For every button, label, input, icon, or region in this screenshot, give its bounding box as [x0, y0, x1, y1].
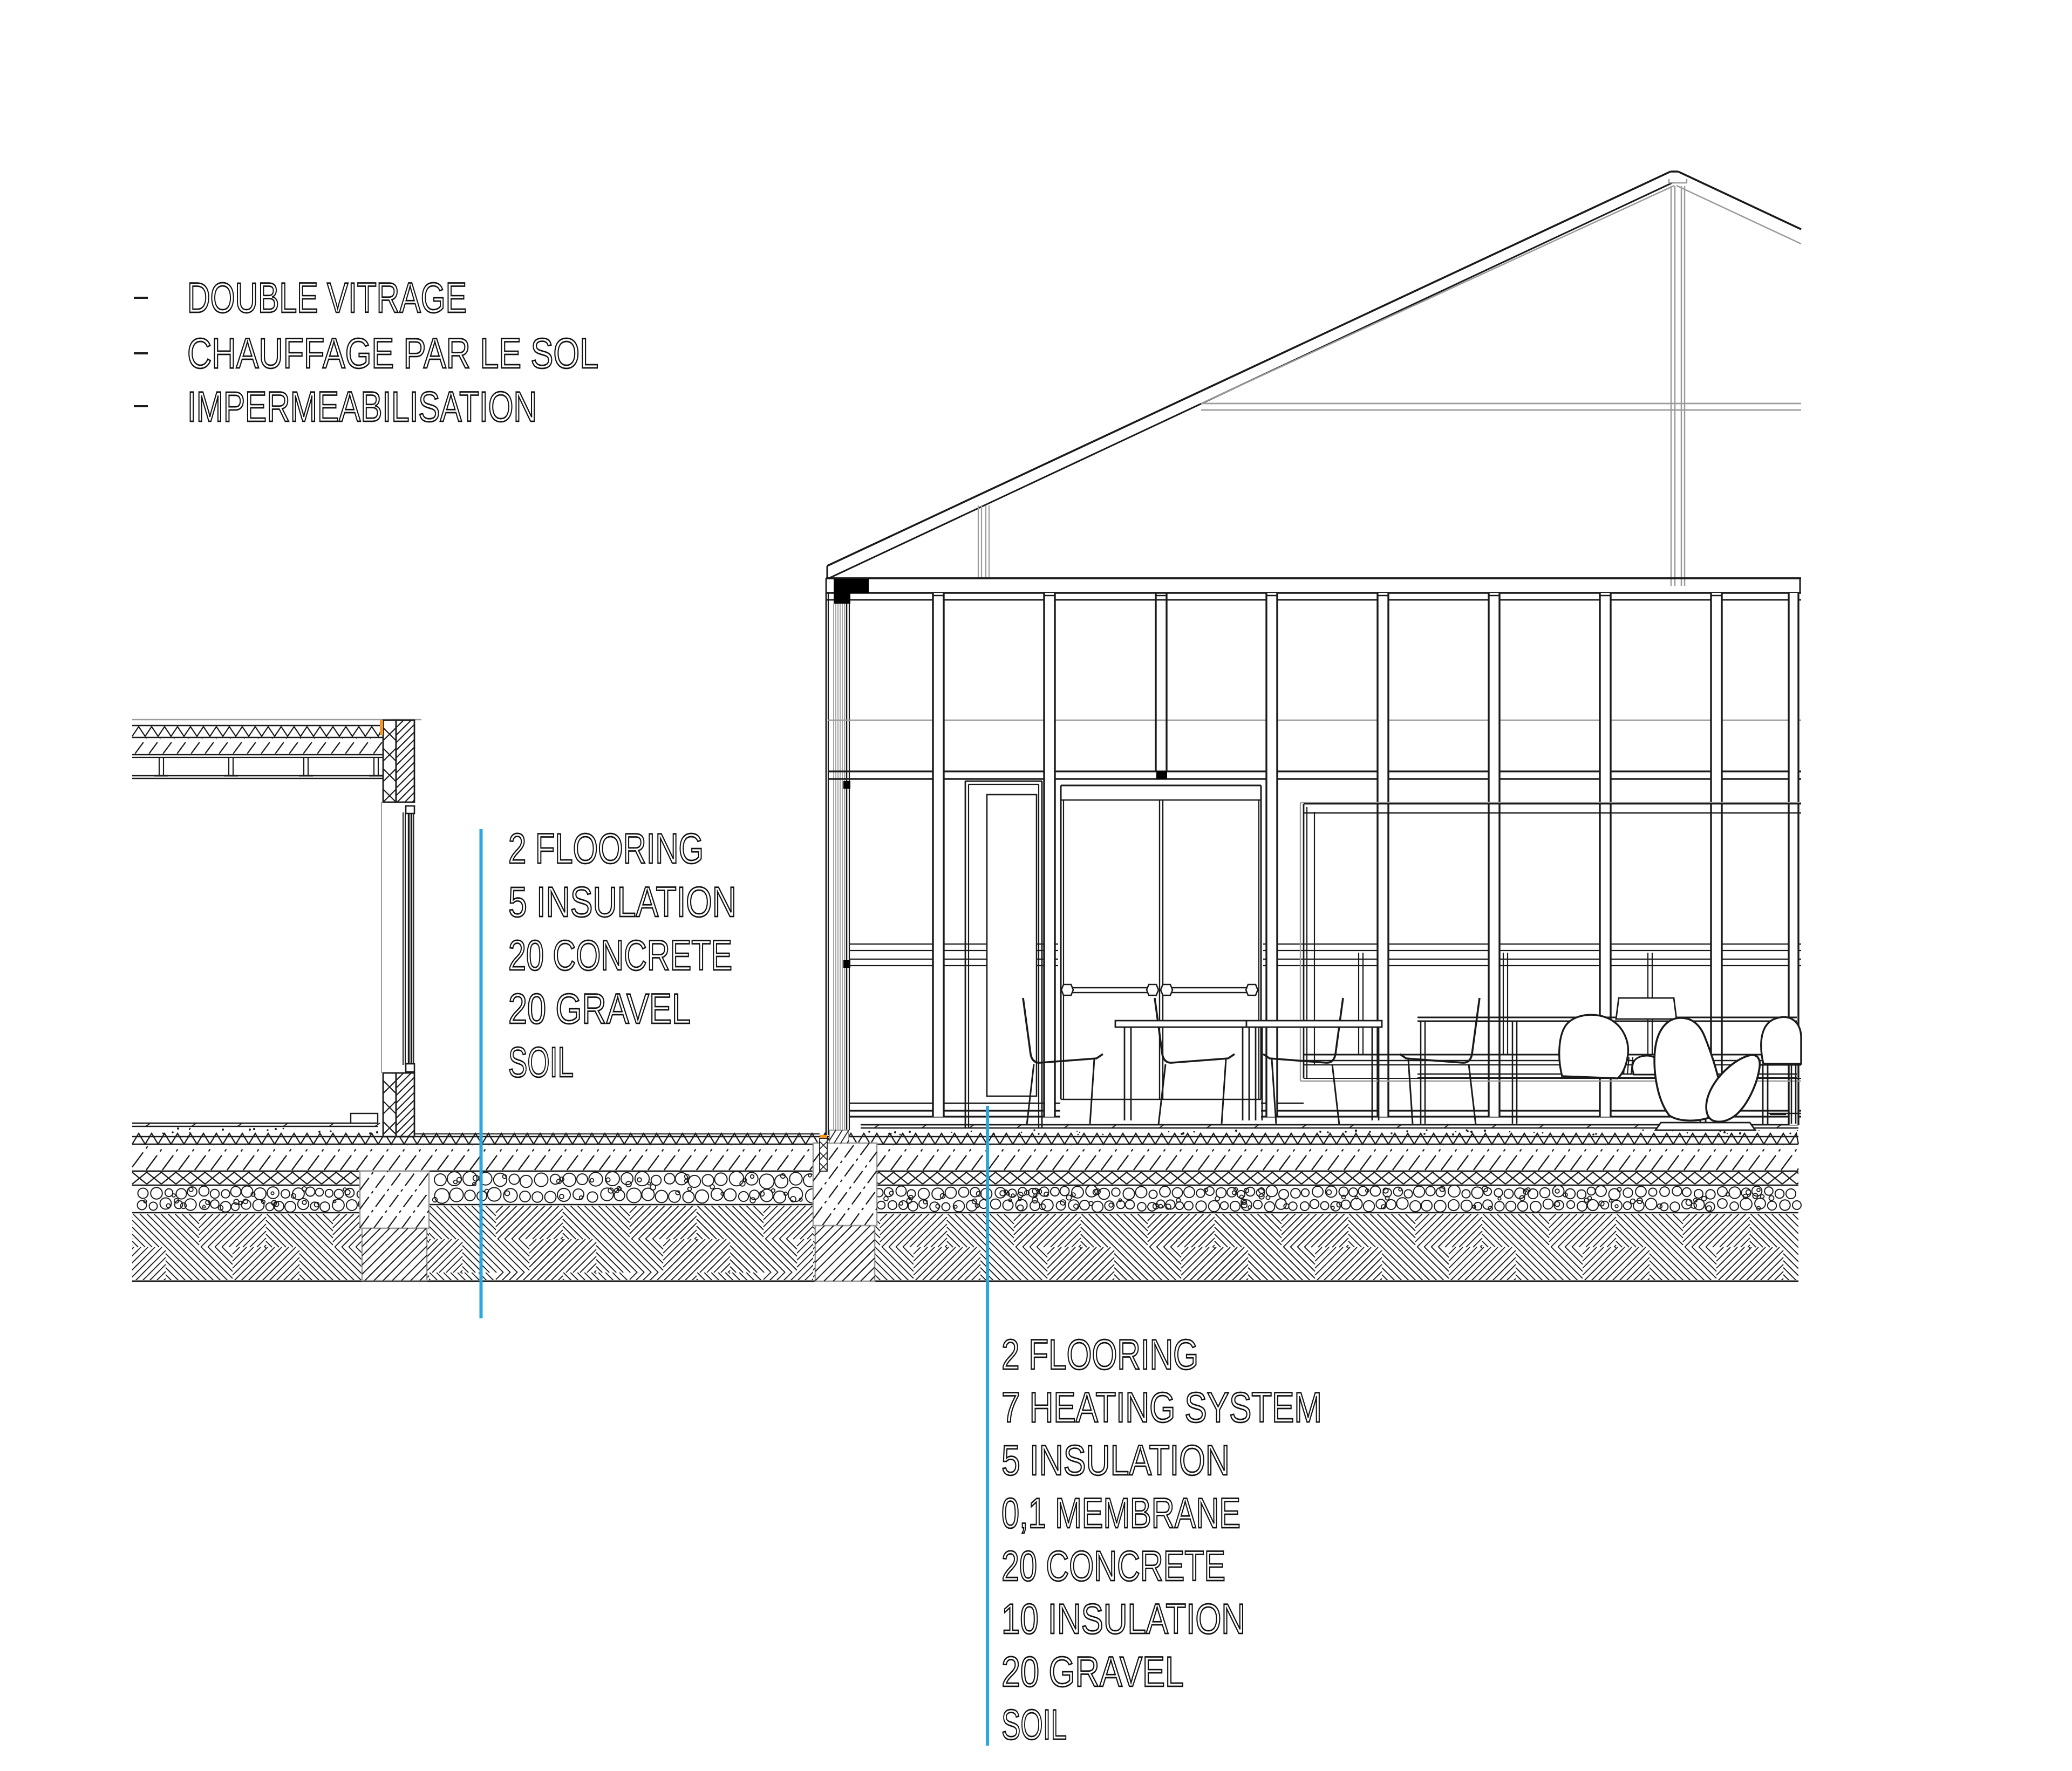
svg-text:5 INSULATION: 5 INSULATION: [1001, 1436, 1230, 1484]
svg-text:2 FLOORING: 2 FLOORING: [508, 824, 704, 872]
svg-text:CHAUFFAGE PAR LE SOL: CHAUFFAGE PAR LE SOL: [187, 329, 598, 377]
svg-text:7 HEATING SYSTEM: 7 HEATING SYSTEM: [1001, 1383, 1322, 1431]
svg-text:20 GRAVEL: 20 GRAVEL: [1001, 1647, 1184, 1695]
svg-text:DOUBLE VITRAGE: DOUBLE VITRAGE: [187, 273, 467, 322]
svg-text:10 INSULATION: 10 INSULATION: [1001, 1595, 1245, 1643]
svg-text:20 CONCRETE: 20 CONCRETE: [1001, 1542, 1225, 1590]
svg-text:20 GRAVEL: 20 GRAVEL: [508, 984, 691, 1032]
svg-text:2 FLOORING: 2 FLOORING: [1001, 1330, 1198, 1378]
svg-text:0,1 MEMBRANE: 0,1 MEMBRANE: [1001, 1489, 1241, 1537]
svg-text:SOIL: SOIL: [508, 1038, 574, 1086]
svg-text:20 CONCRETE: 20 CONCRETE: [508, 931, 732, 979]
svg-text:5 INSULATION: 5 INSULATION: [508, 878, 737, 926]
svg-text:IMPERMEABILISATION: IMPERMEABILISATION: [187, 382, 537, 430]
svg-text:SOIL: SOIL: [1001, 1700, 1067, 1748]
